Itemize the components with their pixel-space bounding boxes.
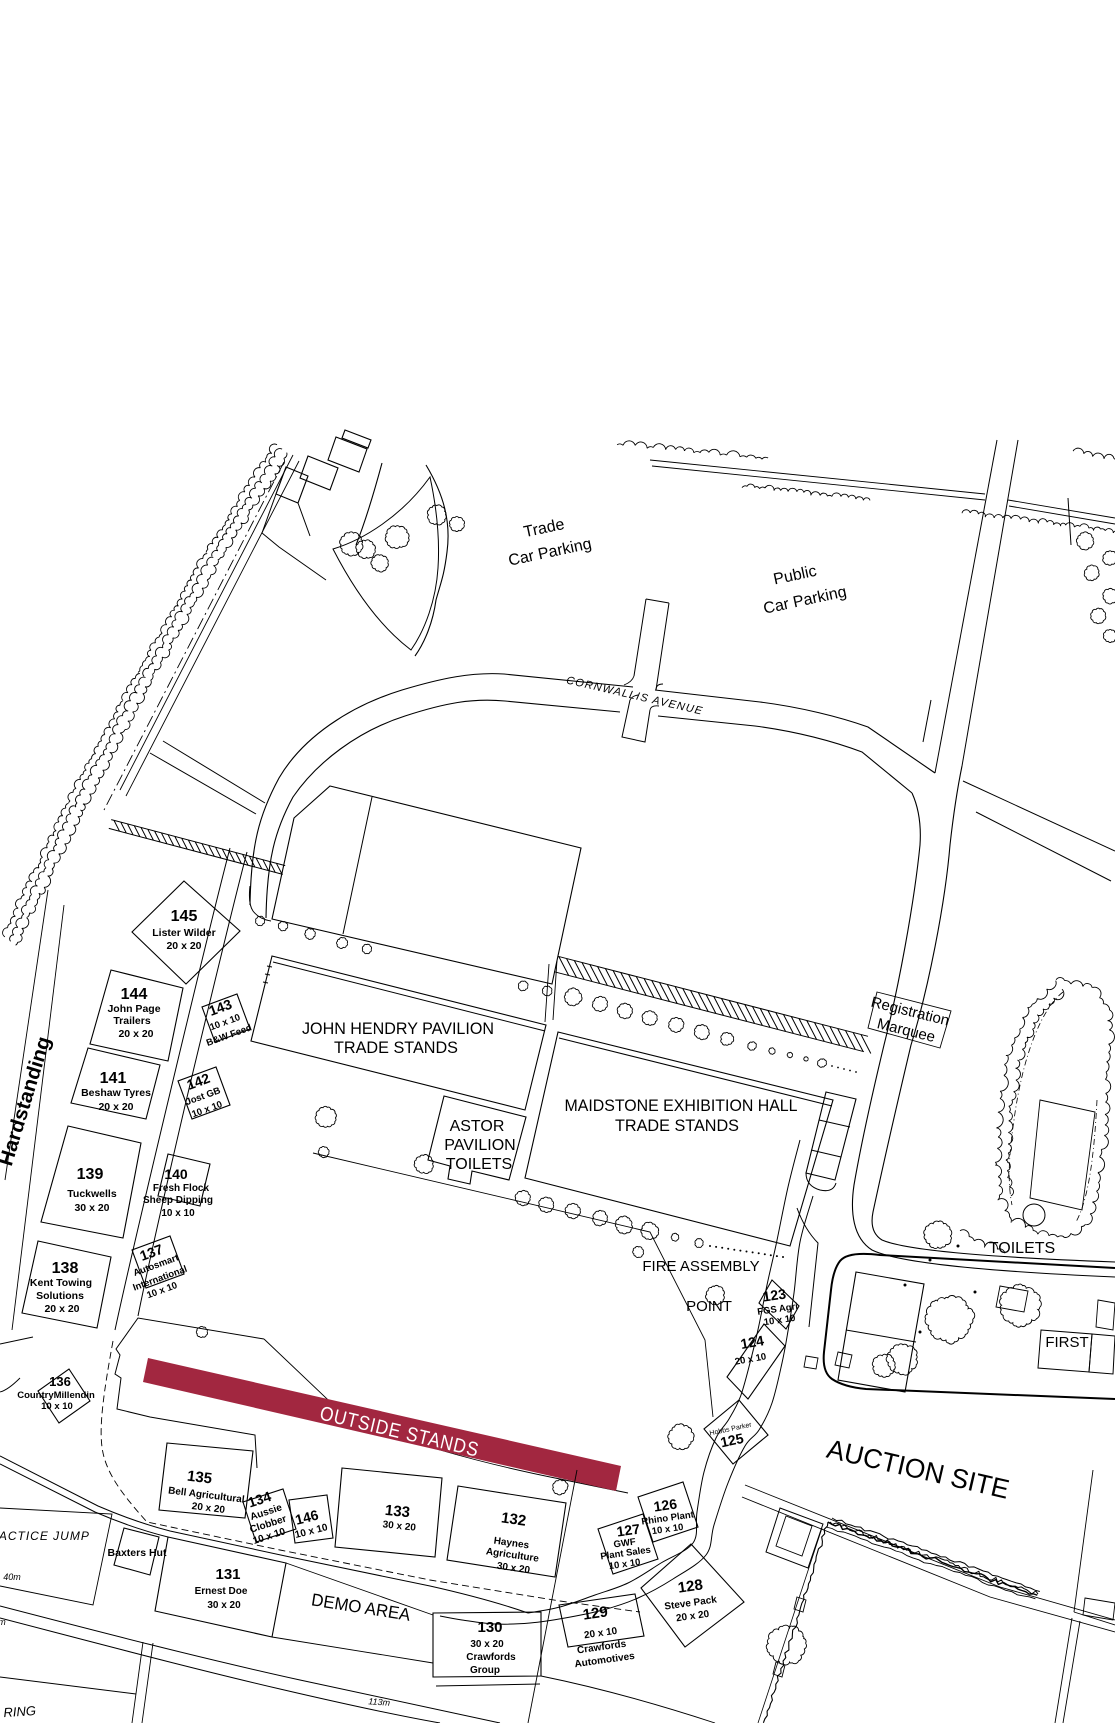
svg-text:PAVILION: PAVILION <box>444 1137 515 1154</box>
svg-text:10 x 10: 10 x 10 <box>41 1401 73 1412</box>
svg-text:20 x 20: 20 x 20 <box>166 940 201 952</box>
svg-text:136: 136 <box>49 1374 71 1389</box>
svg-text:JOHN HENDRY PAVILION: JOHN HENDRY PAVILION <box>302 1019 494 1038</box>
svg-text:m: m <box>0 1617 6 1627</box>
svg-text:John Page: John Page <box>107 1003 160 1015</box>
svg-text:Beshaw Tyres: Beshaw Tyres <box>81 1087 151 1099</box>
svg-text:Sheep Dipping: Sheep Dipping <box>143 1195 213 1206</box>
svg-text:130: 130 <box>477 1619 502 1636</box>
svg-text:Tuckwells: Tuckwells <box>67 1188 117 1200</box>
svg-text:Kent Towing: Kent Towing <box>30 1277 92 1289</box>
svg-text:113m: 113m <box>368 1696 391 1708</box>
svg-text:20 x 20: 20 x 20 <box>44 1303 79 1315</box>
svg-text:128: 128 <box>677 1576 704 1596</box>
svg-text:144: 144 <box>121 986 148 1003</box>
svg-text:141: 141 <box>100 1070 127 1087</box>
svg-text:MAIDSTONE EXHIBITION HALL: MAIDSTONE EXHIBITION HALL <box>565 1096 798 1115</box>
svg-text:40m: 40m <box>3 1572 21 1582</box>
svg-text:Trailers: Trailers <box>113 1015 151 1027</box>
svg-text:Group: Group <box>470 1665 500 1676</box>
svg-text:ASTOR: ASTOR <box>450 1118 505 1135</box>
svg-text:Lister Wilder: Lister Wilder <box>152 927 216 939</box>
svg-text:135: 135 <box>186 1468 213 1488</box>
svg-text:TRADE STANDS: TRADE STANDS <box>615 1116 739 1135</box>
svg-text:10 x 10: 10 x 10 <box>161 1208 195 1219</box>
svg-text:30 x 20: 30 x 20 <box>470 1639 504 1650</box>
svg-text:FIRST: FIRST <box>1045 1334 1088 1351</box>
svg-text:Ernest Doe: Ernest Doe <box>195 1586 248 1597</box>
svg-text:133: 133 <box>384 1502 411 1522</box>
svg-text:138: 138 <box>52 1260 79 1277</box>
svg-text:RING: RING <box>3 1703 36 1720</box>
svg-text:PRACTICE JUMP: PRACTICE JUMP <box>0 1529 90 1543</box>
svg-text:30 x 20: 30 x 20 <box>207 1600 241 1611</box>
svg-text:POINT: POINT <box>686 1298 732 1315</box>
svg-text:20 x 20: 20 x 20 <box>118 1028 153 1040</box>
svg-text:FIRE ASSEMBLY: FIRE ASSEMBLY <box>642 1258 759 1275</box>
svg-text:TOILETS: TOILETS <box>446 1156 512 1173</box>
svg-text:CountryMillendin: CountryMillendin <box>17 1390 95 1401</box>
svg-text:145: 145 <box>171 908 198 925</box>
svg-text:TRADE STANDS: TRADE STANDS <box>334 1038 458 1057</box>
svg-text:20 x 20: 20 x 20 <box>98 1101 133 1113</box>
svg-text:131: 131 <box>215 1566 240 1583</box>
svg-text:Crawfords: Crawfords <box>466 1652 516 1663</box>
svg-text:Solutions: Solutions <box>36 1290 84 1302</box>
svg-text:Baxters Hut: Baxters Hut <box>108 1547 167 1559</box>
svg-text:132: 132 <box>500 1509 527 1529</box>
svg-text:Fresh Flock: Fresh Flock <box>153 1183 210 1194</box>
svg-text:30 x 20: 30 x 20 <box>74 1202 109 1214</box>
svg-text:139: 139 <box>77 1166 104 1183</box>
